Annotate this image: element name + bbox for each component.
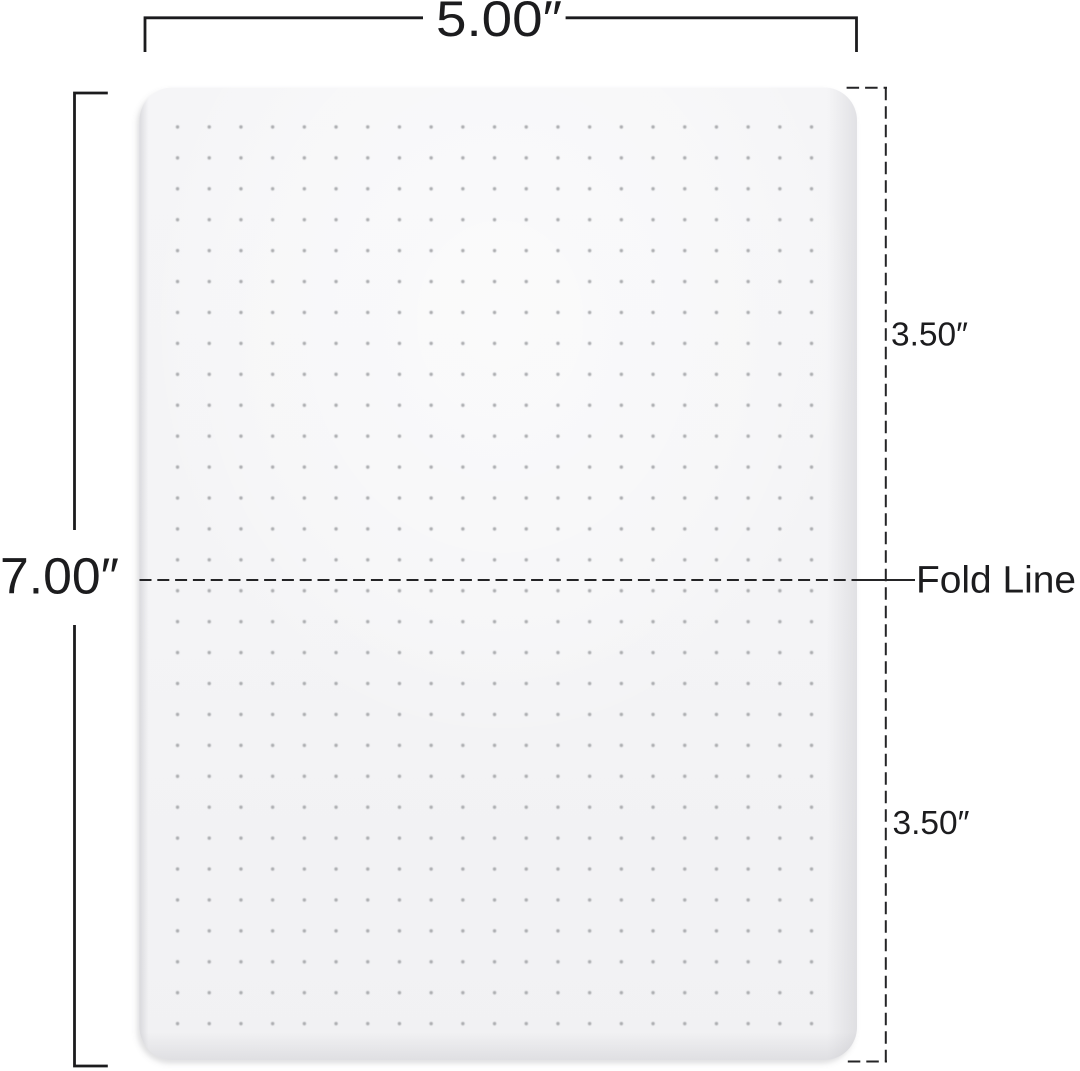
svg-text:Fold Line: Fold Line [916, 559, 1076, 601]
svg-text:5.00″: 5.00″ [436, 0, 562, 47]
svg-text:7.00″: 7.00″ [0, 548, 119, 605]
svg-text:3.50″: 3.50″ [893, 805, 970, 842]
svg-text:3.50″: 3.50″ [891, 316, 968, 353]
